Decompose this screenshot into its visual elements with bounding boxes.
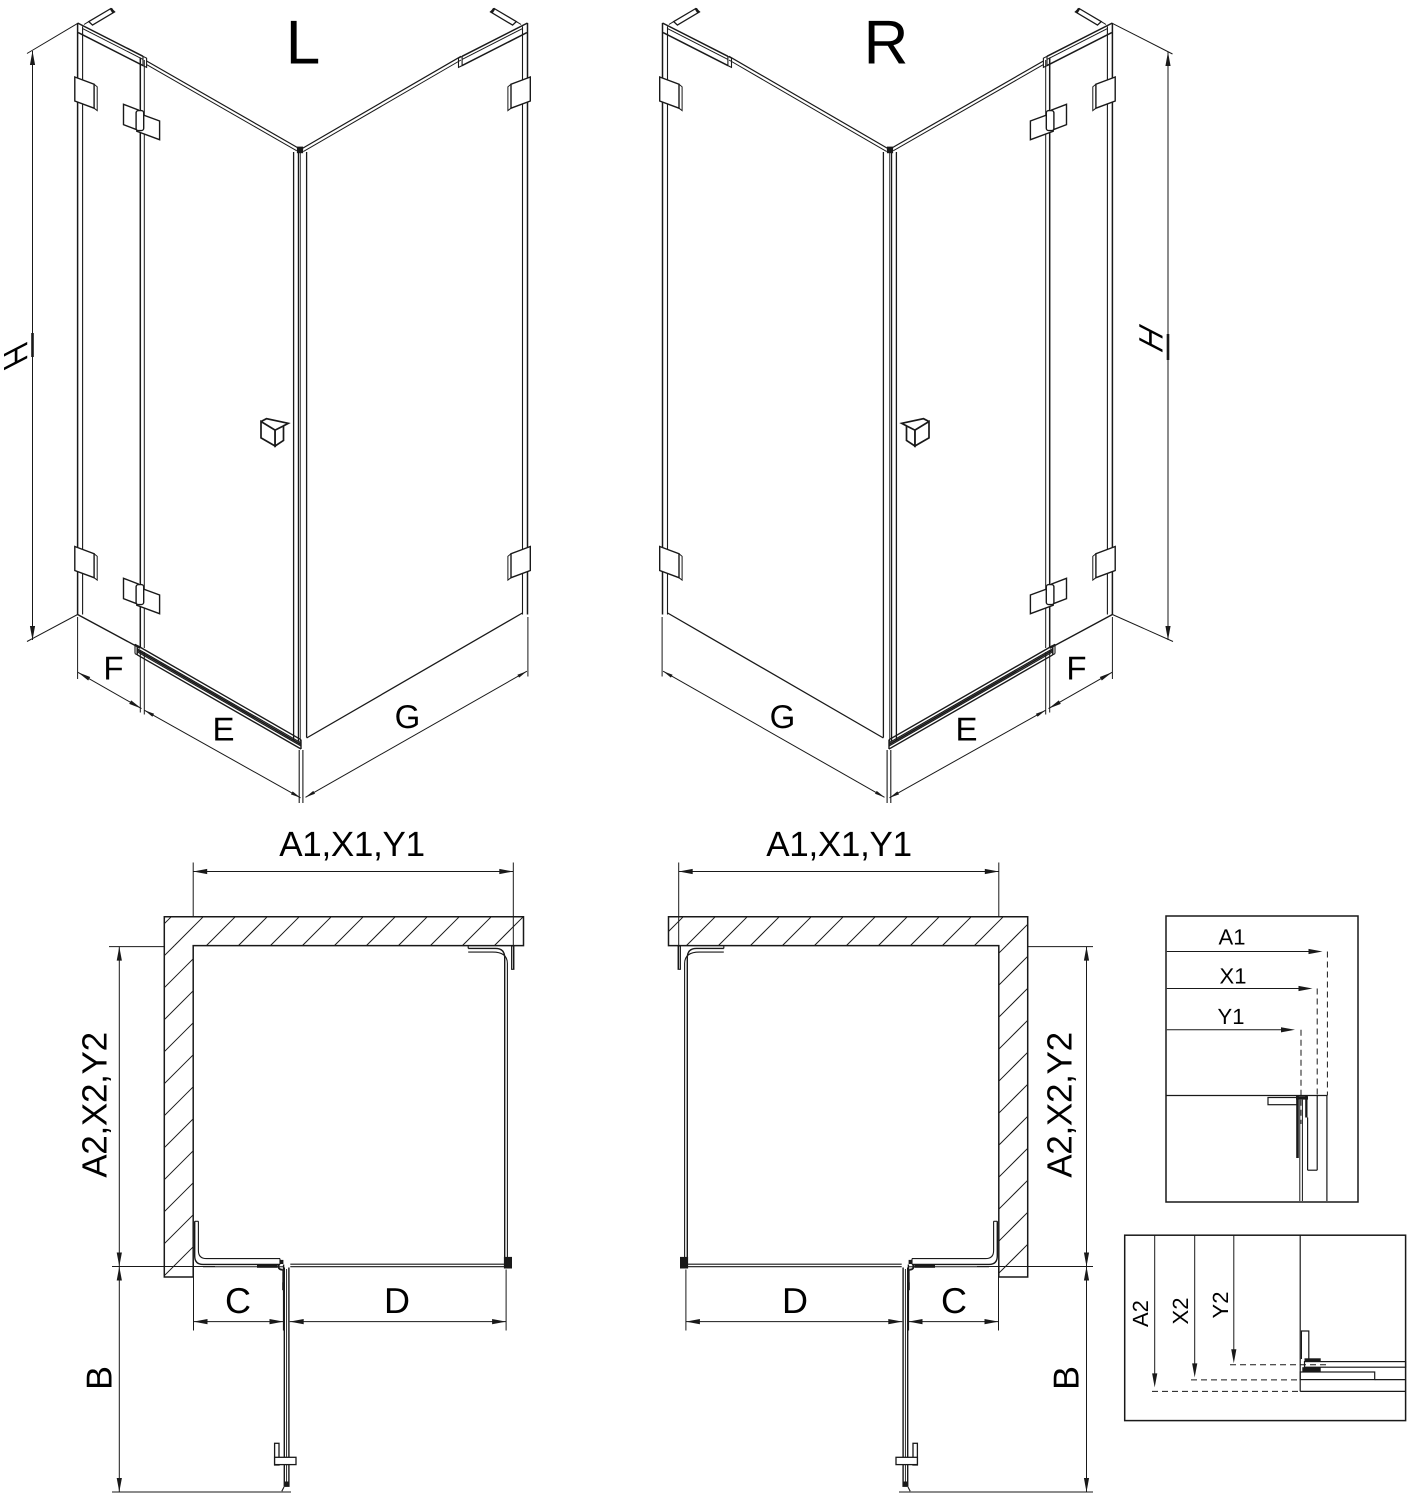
svg-text:A2: A2 (1128, 1300, 1153, 1327)
svg-text:C: C (225, 1280, 251, 1321)
svg-text:E: E (212, 710, 234, 747)
svg-text:A1,X1,Y1: A1,X1,Y1 (766, 825, 911, 864)
svg-text:B: B (79, 1366, 120, 1390)
svg-text:G: G (395, 698, 421, 735)
svg-text:Y2: Y2 (1208, 1292, 1233, 1319)
svg-text:A1: A1 (1219, 925, 1246, 950)
svg-text:R: R (864, 9, 909, 78)
svg-text:X2: X2 (1168, 1298, 1193, 1325)
svg-text:F: F (103, 649, 123, 686)
svg-text:C: C (941, 1280, 967, 1321)
svg-text:E: E (955, 710, 977, 747)
svg-text:A2,X2,Y2: A2,X2,Y2 (1041, 1032, 1080, 1177)
svg-text:D: D (782, 1280, 808, 1321)
svg-text:G: G (770, 698, 796, 735)
svg-text:L: L (286, 9, 320, 78)
svg-text:B: B (1046, 1366, 1087, 1390)
svg-text:D: D (384, 1280, 410, 1321)
svg-text:A2,X2,Y2: A2,X2,Y2 (76, 1032, 115, 1177)
svg-text:Y1: Y1 (1218, 1004, 1245, 1029)
svg-text:X1: X1 (1220, 964, 1247, 989)
svg-text:F: F (1066, 649, 1086, 686)
svg-text:A1,X1,Y1: A1,X1,Y1 (279, 825, 424, 864)
